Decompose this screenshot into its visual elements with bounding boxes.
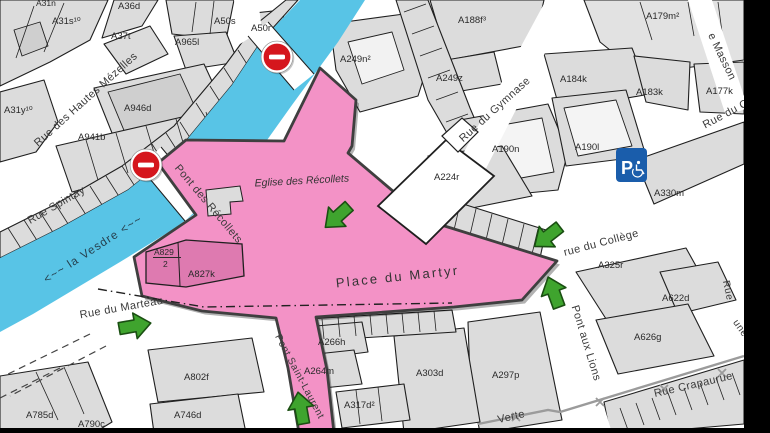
parcel-label: A785d <box>26 410 53 421</box>
parcel-label: A266h <box>318 337 345 348</box>
parcel-label: A622d <box>662 293 689 304</box>
parcel-label: A31s¹⁰ <box>52 16 81 27</box>
parcel-label: A264m <box>304 366 334 377</box>
map-viewport: A31n A31s¹⁰ A36d A50s A50r A37t A965l A9… <box>0 0 770 433</box>
parcel-label: A31n <box>36 0 56 8</box>
parcel-label: A50s <box>214 16 236 27</box>
parcel-label: A325r <box>598 260 623 271</box>
parcel-label: A626g <box>634 332 661 343</box>
disabled-parking-icon: P <box>616 148 647 182</box>
city-map-canvas: A31n A31s¹⁰ A36d A50s A50r A37t A965l A9… <box>0 0 770 433</box>
parcel-label: A179m² <box>646 11 679 22</box>
parcel-label: A249n² <box>340 54 371 65</box>
letterbox-bar-right <box>744 0 770 433</box>
parcel-label: A317d² <box>344 400 375 411</box>
parcel-label: A303d <box>416 368 443 379</box>
parcel-label: A827k <box>188 269 215 280</box>
parcel-label: A183k <box>636 87 663 98</box>
parcel-label: A946d <box>124 103 151 114</box>
parcel-label: A297p <box>492 370 519 381</box>
letterbox-bar-bottom <box>0 428 770 433</box>
parcel-label: A965l <box>175 37 199 48</box>
parcel-label: A330m <box>654 188 684 199</box>
parcel-label: A188f³ <box>458 15 486 26</box>
parcel-label: 2 <box>163 259 168 269</box>
parcel-label: A829 <box>154 247 174 257</box>
parcel-label: A31y¹⁰ <box>4 105 33 116</box>
parcel-label: A50r <box>251 23 271 34</box>
parcel-label: A190n <box>492 144 519 155</box>
parcel-label: A746d <box>174 410 201 421</box>
parking-letter: P <box>621 158 633 178</box>
parcel-label: A802f <box>184 372 209 383</box>
parcel-label: A224r <box>434 172 459 183</box>
parcel-label: A36d <box>118 1 140 12</box>
parcel-label: A941b <box>78 132 105 143</box>
parcel-label: A184k <box>560 74 587 85</box>
parcel-label: A190l <box>575 142 599 153</box>
parcel-label: A37t <box>111 31 131 42</box>
parcel-label: A177k <box>706 86 733 97</box>
parcel-label: A249z <box>436 73 463 84</box>
